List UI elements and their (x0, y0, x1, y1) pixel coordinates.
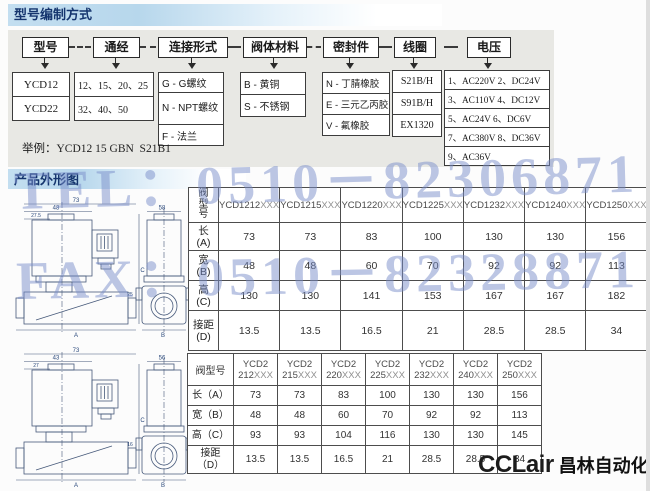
flow-box-seal: 密封件 (323, 37, 379, 58)
options-coil: S21B/HS91B/HEX1320 (392, 70, 442, 137)
spec-value-cell: 60 (341, 251, 402, 281)
flow-connector (444, 46, 458, 48)
options-model: YCD12YCD22 (12, 72, 70, 121)
row-label: 接距（D） (188, 446, 234, 474)
spec-value-cell: 145 (498, 426, 542, 446)
options-model-item: YCD12 (13, 73, 69, 96)
spec-value-cell: 130 (219, 281, 280, 311)
options-voltage-item: 5、AC24V 6、DC6V (445, 108, 549, 127)
spec-table-ycd1-series: 阀型号YCD1212XXXYCD1215XXXYCD1220XXXYCD1225… (188, 187, 648, 351)
section2-title-text: 产品外形图 (14, 172, 79, 187)
valve-outline-drawings: 73 48 27.5 58 C 25 A B 73 43 27 56 C 16 … (6, 196, 192, 488)
spec-value-cell: 130 (410, 426, 454, 446)
dim-label: C (140, 418, 145, 424)
page-edge (646, 0, 650, 491)
options-diameter-item: 32、40、50 (75, 96, 153, 120)
model-column-header: YCD1225XXX (402, 188, 463, 223)
spec-value-cell: 182 (586, 281, 647, 311)
flow-arrow (115, 57, 116, 67)
flow-box-coil: 线圈 (394, 37, 436, 58)
spec-value-cell: 21 (402, 311, 463, 351)
model-column-header: YCD1212XXX (219, 188, 280, 223)
options-connection: G - G螺纹N - NPT螺纹F - 法兰 (158, 72, 224, 146)
spec-value-cell: 70 (366, 406, 410, 426)
spec-value-cell: 48 (278, 406, 322, 426)
table-corner-label: 阀型号 (188, 354, 234, 386)
spec-value-cell: 92 (463, 251, 524, 281)
dim-label: 56 (159, 356, 166, 362)
flow-arrow (349, 57, 350, 67)
flow-connector (228, 46, 241, 48)
example-value: YCD12 15 GBN S21B1 (57, 143, 171, 155)
spec-value-cell: 21 (366, 446, 410, 474)
flow-box-body-material: 阀体材料 (243, 37, 307, 58)
spec-value-cell: 113 (498, 406, 542, 426)
spec-value-cell: 60 (322, 406, 366, 426)
spec-value-cell: 73 (278, 386, 322, 406)
spec-value-cell: 100 (402, 223, 463, 251)
options-model-item: YCD22 (13, 96, 69, 120)
row-label: 高(C) (189, 281, 219, 311)
flow-connector (379, 46, 392, 48)
spec-value-cell: 73 (234, 386, 278, 406)
dim-label: B (161, 483, 165, 488)
options-coil-item: S21B/H (393, 71, 441, 92)
example-line: 举例：YCD12 15 GBN S21B1 (22, 140, 171, 156)
options-voltage-item: 3、AC110V 4、DC12V (445, 89, 549, 108)
spec-value-cell: 13.5 (234, 446, 278, 474)
spec-value-cell: 130 (525, 223, 586, 251)
spec-value-cell: 28.5 (410, 446, 454, 474)
spec-value-cell: 116 (366, 426, 410, 446)
spec-value-cell: 156 (498, 386, 542, 406)
spec-value-cell: 92 (410, 406, 454, 426)
spec-value-cell: 93 (278, 426, 322, 446)
spec-value-cell: 83 (322, 386, 366, 406)
row-label: 宽（B） (188, 406, 234, 426)
spec-value-cell: 13.5 (278, 446, 322, 474)
section-title-model-numbering: 型号编制方式 (8, 4, 442, 26)
flow-box-model: 型号 (22, 37, 69, 58)
options-connection-item: N - NPT螺纹 (159, 92, 223, 124)
spec-value-cell: 73 (219, 223, 280, 251)
model-column-header: YCD2225XXX (366, 354, 410, 386)
options-diameter: 12、15、20、2532、40、50 (74, 72, 154, 121)
options-body-material-item: S - 不锈钢 (241, 94, 305, 116)
options-seal-item: V - 氟橡胶 (323, 114, 389, 135)
spec-value-cell: 100 (366, 386, 410, 406)
logo-text-en: CCLair (478, 451, 554, 479)
spec-value-cell: 130 (410, 386, 454, 406)
options-voltage-item: 1、AC220V 2、DC24V (445, 71, 549, 89)
model-column-header: YCD1240XXX (525, 188, 586, 223)
model-column-header: YCD1250XXX (586, 188, 647, 223)
spec-value-cell: 130 (454, 386, 498, 406)
model-column-header: YCD1232XXX (463, 188, 524, 223)
row-label: 接距(D) (189, 311, 219, 351)
section-title-product-outline: 产品外形图 (8, 169, 246, 189)
spec-value-cell: 130 (280, 281, 341, 311)
example-label: 举例： (22, 143, 57, 155)
spec-value-cell: 48 (219, 251, 280, 281)
spec-value-cell: 16.5 (322, 446, 366, 474)
model-column-header: YCD1215XXX (280, 188, 341, 223)
flow-connector (140, 46, 156, 48)
spec-value-cell: 13.5 (219, 311, 280, 351)
options-voltage: 1、AC220V 2、DC24V3、AC110V 4、DC12V5、AC24V … (444, 70, 550, 166)
dim-label: 25 (127, 292, 133, 298)
dim-label: 48 (53, 206, 60, 212)
spec-value-cell: 16.5 (341, 311, 402, 351)
options-diameter-item: 12、15、20、25 (75, 73, 153, 96)
flow-arrow (44, 57, 45, 67)
flow-arrow (273, 57, 274, 67)
spec-value-cell: 73 (280, 223, 341, 251)
row-label: 长（A） (188, 386, 234, 406)
dim-label: 73 (73, 348, 80, 354)
flow-arrow (191, 57, 192, 67)
spec-value-cell: 141 (341, 281, 402, 311)
flow-arrow (413, 57, 414, 67)
spec-value-cell: 28.5 (525, 311, 586, 351)
spec-value-cell: 130 (463, 223, 524, 251)
flow-box-voltage: 电压 (467, 37, 511, 58)
spec-value-cell: 92 (525, 251, 586, 281)
flow-connector (69, 46, 91, 48)
logo-text-cn: 昌林自动化 (559, 452, 649, 478)
spec-value-cell: 113 (586, 251, 647, 281)
dim-label: A (74, 333, 78, 339)
model-column-header: YCD1220XXX (341, 188, 402, 223)
options-body-material: B - 黄铜S - 不锈钢 (240, 72, 306, 117)
dim-label: B (161, 333, 165, 339)
dim-label: A (74, 483, 78, 488)
model-column-header: YCD2232XXX (410, 354, 454, 386)
model-column-header: YCD2240XXX (454, 354, 498, 386)
options-voltage-item: 7、AC380V 8、DC36V (445, 127, 549, 146)
spec-value-cell: 156 (586, 223, 647, 251)
row-label: 宽(B) (189, 251, 219, 281)
flow-arrow (487, 57, 488, 67)
spec-value-cell: 70 (402, 251, 463, 281)
spec-value-cell: 104 (322, 426, 366, 446)
spec-value-cell: 167 (463, 281, 524, 311)
spec-value-cell: 28.5 (463, 311, 524, 351)
dim-label: 73 (73, 198, 80, 204)
options-coil-item: S91B/H (393, 92, 441, 114)
flow-box-diameter: 通经 (93, 37, 140, 58)
model-column-header: YCD2250XXX (498, 354, 542, 386)
options-body-material-item: B - 黄铜 (241, 73, 305, 94)
spec-value-cell: 34 (586, 311, 647, 351)
spec-value-cell: 167 (525, 281, 586, 311)
options-seal-item: N - 丁腈橡胶 (323, 73, 389, 93)
dim-label: 27.5 (31, 213, 41, 219)
spec-value-cell: 83 (341, 223, 402, 251)
spec-value-cell: 13.5 (280, 311, 341, 351)
options-seal: N - 丁腈橡胶E - 三元乙丙胶V - 氟橡胶 (322, 72, 390, 136)
spec-value-cell: 48 (280, 251, 341, 281)
dim-label: C (140, 268, 145, 274)
table-corner-label: 阀型号 (189, 188, 219, 223)
row-label: 长(A) (189, 223, 219, 251)
spec-value-cell: 130 (454, 426, 498, 446)
dim-label: 27 (33, 363, 39, 369)
dim-label: 43 (53, 356, 60, 362)
dim-label: 58 (159, 206, 166, 212)
model-column-header: YCD2215XXX (278, 354, 322, 386)
spec-value-cell: 92 (454, 406, 498, 426)
flow-box-connection: 连接形式 (158, 37, 228, 58)
spec-value-cell: 48 (234, 406, 278, 426)
row-label: 高（C） (188, 426, 234, 446)
options-coil-item: EX1320 (393, 114, 441, 136)
model-column-header: YCD2220XXX (322, 354, 366, 386)
company-logo: CCLair 昌林自动化 (478, 451, 649, 479)
model-column-header: YCD2212XXX (234, 354, 278, 386)
options-seal-item: E - 三元乙丙胶 (323, 93, 389, 114)
options-connection-item: G - G螺纹 (159, 73, 223, 92)
options-voltage-item: 9、AC36V (445, 146, 549, 165)
spec-value-cell: 93 (234, 426, 278, 446)
spec-value-cell: 153 (402, 281, 463, 311)
section1-title-text: 型号编制方式 (14, 7, 92, 22)
flow-connector (307, 46, 321, 48)
dim-label: 16 (127, 442, 133, 448)
